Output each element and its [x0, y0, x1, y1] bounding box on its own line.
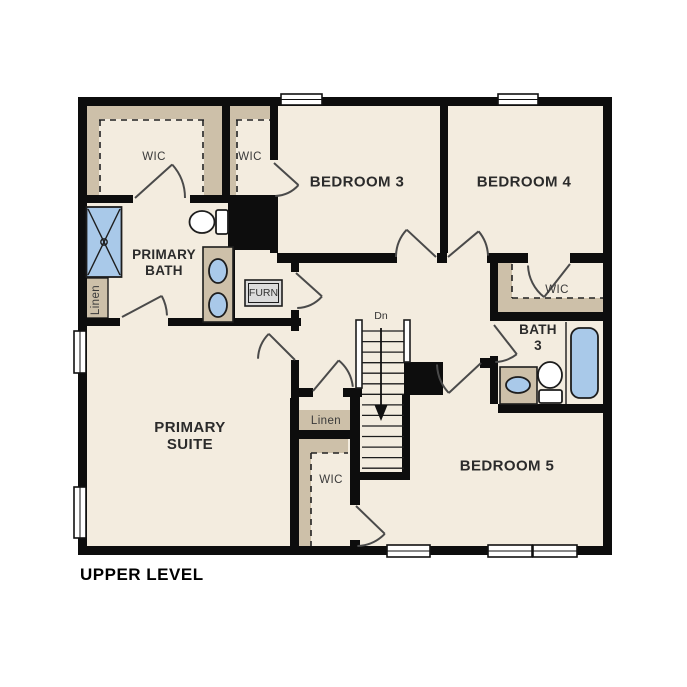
room-label-wic-bedroom3: WIC [238, 151, 262, 163]
bath3-toilet-fixture [538, 362, 562, 403]
shower-fixture [87, 207, 122, 277]
stair-rail-left [356, 320, 362, 388]
room-label-bath3: BATH 3 [519, 322, 557, 354]
bathtub-fixture [566, 322, 598, 404]
primary-vanity-fixture [203, 247, 233, 322]
room-label-bedroom5: BEDROOM 5 [460, 458, 554, 475]
floor-plan: WIC WIC BEDROOM 3 BEDROOM 4 PRIMARY BATH… [0, 0, 687, 687]
room-label-bedroom3: BEDROOM 3 [310, 174, 404, 191]
room-label-wic-bedroom4: WIC [545, 284, 569, 296]
room-label-linen-hall: Linen [311, 415, 341, 427]
room-label-wic-primary: WIC [142, 151, 166, 163]
room-label-bedroom4: BEDROOM 4 [477, 174, 571, 191]
bath3-vanity-fixture [500, 367, 537, 404]
stairs-down-label: Dn [374, 310, 387, 322]
room-label-linen-primary: Linen [90, 285, 102, 315]
room-label-primary-bath: PRIMARY BATH [132, 247, 196, 279]
stair-rail-right [404, 320, 410, 362]
room-label-wic-bedroom5: WIC [319, 474, 343, 486]
plan-caption: UPPER LEVEL [80, 565, 204, 585]
room-label-furnace: FURN [249, 287, 278, 299]
primary-toilet-fixture [190, 210, 229, 234]
room-label-primary-suite: PRIMARY SUITE [154, 419, 225, 453]
